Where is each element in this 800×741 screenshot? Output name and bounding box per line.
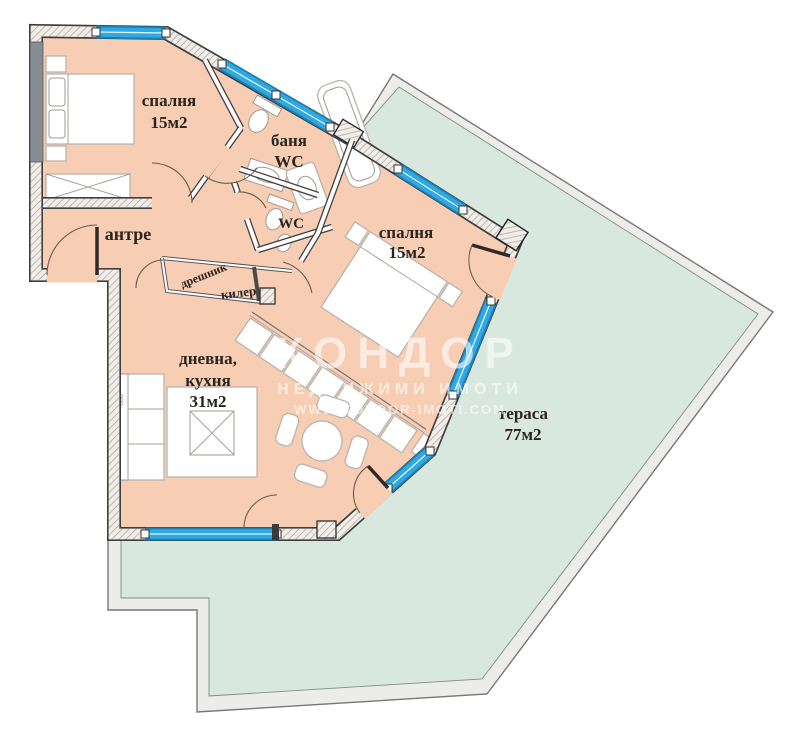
bedroom-right-area: 15м2	[388, 243, 425, 262]
bedroom-top-name: спалня	[142, 91, 197, 110]
floor-plan-page: 668	[0, 0, 800, 741]
living-label-area: 31м2	[189, 392, 226, 411]
bedroom-top-furniture	[46, 56, 134, 200]
floor-plan: 668	[0, 0, 800, 741]
window-top	[96, 32, 166, 33]
living-corner-pier	[317, 521, 336, 538]
watermark-subtitle: НЕДВИЖИМИ ИМОТИ	[277, 381, 522, 398]
bedroom-top-area: 15м2	[150, 113, 187, 132]
nightstand	[46, 56, 66, 72]
bathroom-label-line1: баня	[271, 131, 307, 150]
bathroom-label-line2: WC	[274, 152, 303, 171]
watermark-brand: КОНДОР	[276, 329, 524, 378]
terrace-area: 77м2	[504, 425, 541, 444]
hallway-label: антре	[105, 224, 151, 244]
watermark-website: WWW.KONDOR-IMOTI.COM	[294, 402, 506, 417]
pantry-pier	[260, 288, 275, 304]
agency-watermark: КОНДОР НЕДВИЖИМИ ИМОТИ WWW.KONDOR-IMOTI.…	[276, 329, 524, 417]
nightstand	[46, 146, 66, 161]
pillow	[49, 78, 65, 106]
wc-label: WC	[278, 216, 304, 232]
left-wall-dark-block	[30, 42, 43, 162]
pillow	[49, 110, 65, 138]
living-label-line2: кухня	[185, 371, 231, 390]
door-jamb	[272, 524, 279, 540]
bedroom-right-name: спалня	[379, 223, 434, 242]
living-label-line1: дневна,	[179, 349, 237, 368]
